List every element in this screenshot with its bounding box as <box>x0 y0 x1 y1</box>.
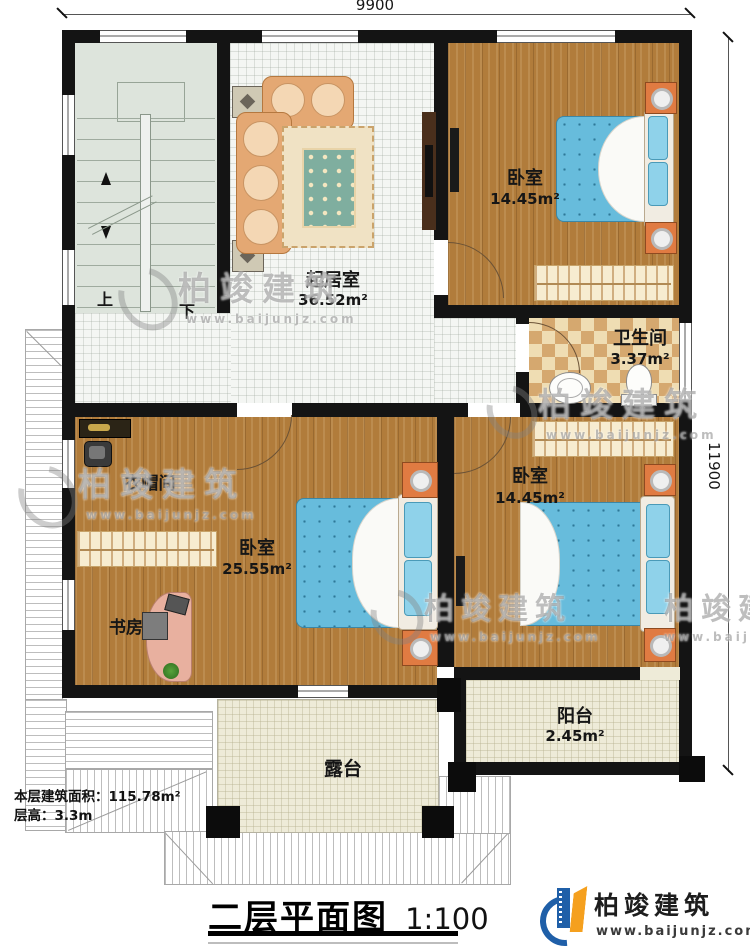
window-left-2 <box>62 250 75 305</box>
watermark-text: 柏竣建筑 <box>178 262 357 310</box>
label-balcony: 阳台 <box>530 708 620 727</box>
floor-height-info: 层高：3.3m <box>14 804 92 824</box>
terrace-door <box>298 685 348 698</box>
floor-area-info: 本层建筑面积：115.78m² <box>14 785 181 805</box>
label-master-area: 25.55m² <box>212 562 302 578</box>
watermark: 柏竣建筑 www.baijunjz.com <box>664 584 750 644</box>
closet-hangers <box>534 265 674 301</box>
watermark: 柏竣建筑 www.baijunjz.com <box>488 378 717 442</box>
wall-balcony-bottom <box>454 762 692 775</box>
wall-tv <box>450 128 459 192</box>
bed-pillow <box>648 116 668 160</box>
window-top-living <box>262 30 358 43</box>
watermark-url: www.baijunjz.com <box>546 428 717 442</box>
watermark-logo <box>360 579 434 655</box>
label-terrace: 露台 <box>298 760 388 780</box>
nightstand <box>644 464 676 496</box>
watermark: 柏竣建筑 www.baijunjz.com <box>120 262 357 326</box>
bed-pillow <box>646 504 670 558</box>
terrace-pillar-left <box>206 806 240 838</box>
watermark-url: www.baijunjz.com <box>430 630 601 644</box>
plant-icon <box>163 663 179 679</box>
watermark-text: 柏竣建筑 <box>538 378 717 426</box>
label-bedroom-top-area: 14.45m² <box>480 192 570 208</box>
brand-building-blue-icon <box>557 888 570 928</box>
label-bedroom-top: 卧室 <box>480 170 570 189</box>
dimension-top-value: 9900 <box>340 0 410 14</box>
window-top-staircase <box>100 30 186 43</box>
watermark: 柏竣建筑 www.baijunjz.com <box>372 584 601 644</box>
title-underline-shadow <box>208 942 458 944</box>
watermark-url: www.baijunjz.com <box>186 312 357 326</box>
title-underline <box>208 931 458 936</box>
label-balcony-area: 2.45m² <box>530 729 620 745</box>
tv-cabinet <box>422 112 436 230</box>
label-study: 书房 <box>94 620 158 638</box>
door-opening-bedroom-top <box>434 240 448 295</box>
nightstand <box>645 222 677 254</box>
label-bedroom-lower-area: 14.45m² <box>485 491 575 507</box>
bed-pillow <box>648 162 668 206</box>
watermark-url: www.baijunjz.com <box>86 508 257 522</box>
roof-hatch-under-terrace <box>165 832 510 884</box>
window-left-4 <box>62 580 75 630</box>
balcony-pillar-left <box>448 762 476 792</box>
label-stairs-up: 上 <box>92 292 118 309</box>
brand-url: www.baijunjz.com <box>596 920 750 939</box>
dimension-right-value: 11900 <box>705 436 721 496</box>
watermark-text: 柏竣建筑 <box>664 584 750 628</box>
label-master-bedroom: 卧室 <box>212 540 302 559</box>
terrace-pillar-right <box>422 806 454 838</box>
dimension-tick <box>684 7 695 18</box>
nightstand <box>402 462 438 498</box>
stair-landing-outline <box>117 82 185 122</box>
balcony-pillar-right <box>679 756 705 782</box>
window-top-bedroom <box>497 30 615 43</box>
wall-bottom-left <box>62 685 452 698</box>
watermark-text: 柏竣建筑 <box>78 458 257 506</box>
dressing-table <box>79 419 131 438</box>
window-left-1 <box>62 95 75 155</box>
watermark-text: 柏竣建筑 <box>424 584 601 628</box>
brand-name: 柏竣建筑 <box>594 886 714 922</box>
roof-hatch-bottom-left <box>66 712 212 768</box>
dimension-line-top <box>62 14 692 15</box>
label-bathroom-area: 3.37m² <box>590 352 690 368</box>
nightstand <box>645 82 677 114</box>
wall-living-bedroom <box>434 30 448 240</box>
dimension-line-right <box>728 38 729 772</box>
dimension-tick <box>56 7 67 18</box>
balcony-door-opening <box>640 667 680 680</box>
rug <box>282 126 374 248</box>
watermark-url: www.baijunjz.com <box>664 630 750 644</box>
bed-pillow <box>404 502 432 558</box>
label-bathroom: 卫生间 <box>590 330 690 349</box>
stair-arrow-up <box>101 172 111 185</box>
terrace-column <box>437 678 461 712</box>
door-opening-bathroom <box>516 324 529 372</box>
watermark: 柏竣建筑 www.baijunjz.com <box>20 458 257 522</box>
label-bedroom-lower: 卧室 <box>485 468 575 487</box>
floorplan-canvas: 9900 11900 <box>0 0 750 952</box>
closet-hangers <box>77 531 217 567</box>
wall-bedroom-bathroom <box>434 305 692 318</box>
brand-logo: 柏竣建筑 www.baijunjz.com <box>540 884 745 946</box>
